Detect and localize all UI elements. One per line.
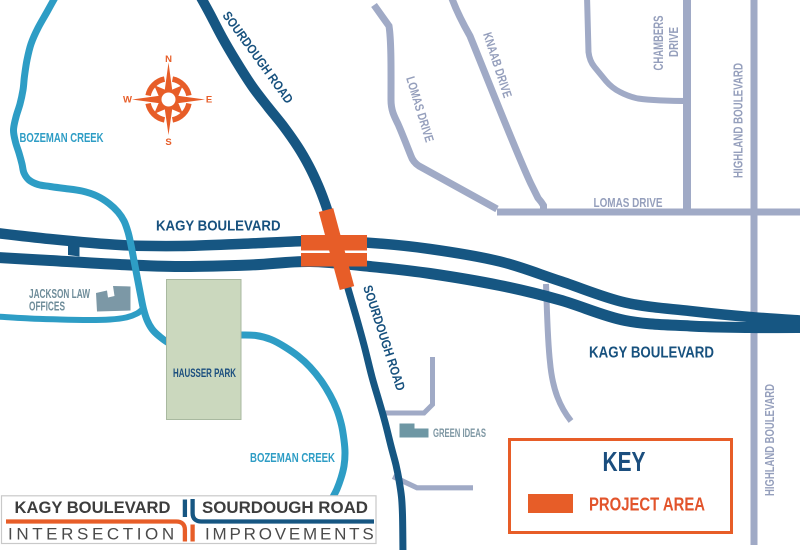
svg-text:IMPROVEMENTS: IMPROVEMENTS	[205, 525, 377, 544]
svg-text:HIGHLAND BOULEVARD: HIGHLAND BOULEVARD	[731, 63, 746, 178]
svg-text:DRIVE: DRIVE	[666, 27, 681, 57]
svg-text:HAUSSER PARK: HAUSSER PARK	[173, 366, 236, 380]
svg-text:E: E	[206, 95, 212, 106]
svg-text:GREEN IDEAS: GREEN IDEAS	[433, 426, 486, 440]
svg-text:HIGHLAND BOULEVARD: HIGHLAND BOULEVARD	[762, 384, 777, 496]
svg-text:S: S	[165, 137, 171, 148]
svg-text:LOMAS DRIVE: LOMAS DRIVE	[594, 195, 663, 210]
svg-text:N: N	[165, 54, 172, 65]
svg-text:BOZEMAN CREEK: BOZEMAN CREEK	[250, 450, 335, 465]
svg-text:KEY: KEY	[603, 446, 646, 477]
svg-text:KAGY BOULEVARD: KAGY BOULEVARD	[156, 218, 281, 235]
svg-text:KAGY BOULEVARD: KAGY BOULEVARD	[589, 345, 714, 362]
svg-text:CHAMBERS: CHAMBERS	[650, 16, 666, 71]
svg-text:OFFICES: OFFICES	[29, 299, 65, 314]
svg-text:KAGY BOULEVARD: KAGY BOULEVARD	[15, 498, 171, 517]
svg-text:SOURDOUGH ROAD: SOURDOUGH ROAD	[202, 498, 368, 517]
svg-text:INTERSECTION: INTERSECTION	[8, 525, 178, 544]
svg-text:BOZEMAN CREEK: BOZEMAN CREEK	[20, 130, 104, 145]
svg-text:W: W	[123, 95, 132, 106]
svg-text:PROJECT AREA: PROJECT AREA	[589, 495, 705, 515]
